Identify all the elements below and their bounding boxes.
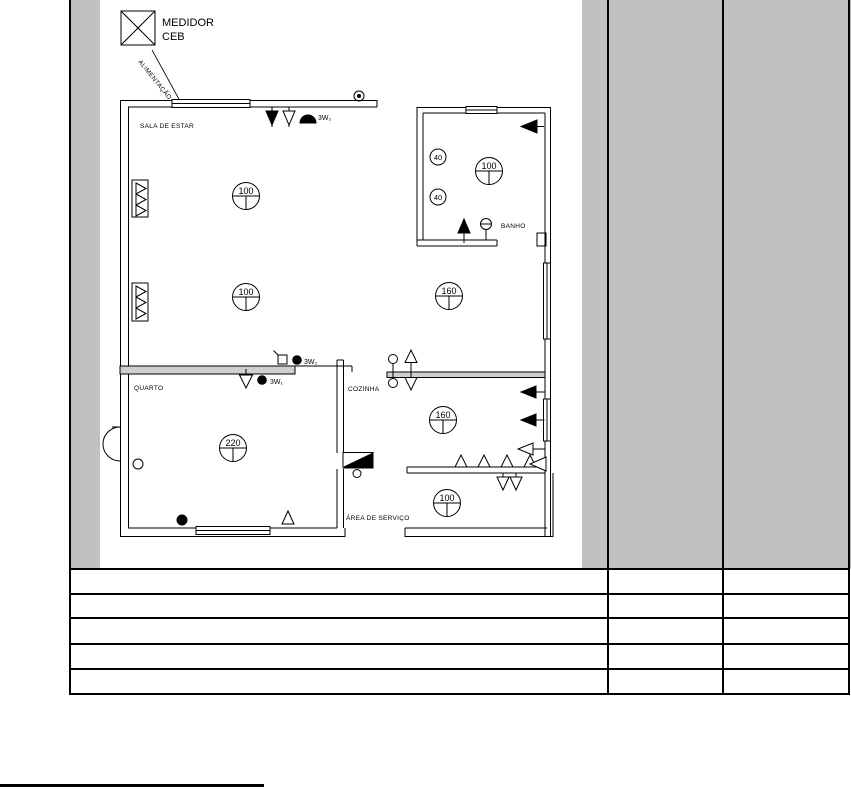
sconce-bath-2: 40 — [430, 189, 446, 205]
meter-label-2: CEB — [162, 31, 185, 43]
svg-text:100: 100 — [238, 287, 253, 297]
svg-text:100: 100 — [439, 493, 454, 503]
three-way-label-b: 3W₁ — [270, 379, 284, 386]
service-label: ÁREA DE SERVIÇO — [346, 513, 410, 522]
right-gray-region — [582, 0, 851, 569]
left-gray-strip — [71, 0, 100, 569]
kitchen-label: COZINHA — [348, 386, 380, 393]
sconce-bath-1: 40 — [430, 149, 446, 165]
bath-label: BANHO — [501, 223, 526, 230]
light-bedroom: 220 — [220, 435, 247, 462]
light-service: 100 — [434, 490, 461, 517]
document-page: MEDIDOR CEB ALIMENTAÇÃO — [0, 0, 851, 789]
svg-text:100: 100 — [238, 186, 253, 196]
window-living-top — [172, 100, 250, 108]
bedroom-wall-circle-icon — [133, 459, 143, 469]
light-kitchen: 160 — [430, 407, 457, 434]
three-way-label-living: 3W₂ — [318, 115, 332, 122]
footnote-rule — [0, 784, 264, 787]
window-bath-top — [466, 107, 497, 114]
svg-text:100: 100 — [481, 161, 496, 171]
switch-dot-a — [293, 356, 302, 365]
bedroom-floor-dot-icon — [177, 515, 187, 525]
switch-dot-b — [258, 376, 267, 385]
light-living-1: 100 — [233, 183, 260, 210]
light-hall: 160 — [436, 283, 463, 310]
wall-vent-icon-1 — [132, 180, 148, 217]
svg-text:40: 40 — [434, 153, 442, 162]
light-living-2: 100 — [233, 284, 260, 311]
light-bath: 100 — [476, 158, 503, 185]
bedroom-label: QUARTO — [134, 385, 163, 392]
svg-text:40: 40 — [434, 193, 442, 202]
wall-vent-icon-2 — [132, 283, 148, 321]
meter-label-1: MEDIDOR — [162, 17, 214, 29]
svg-text:220: 220 — [225, 438, 240, 448]
living-room-label: SALA DE ESTAR — [140, 123, 194, 130]
svg-text:160: 160 — [435, 410, 450, 420]
window-right-2 — [544, 399, 551, 441]
window-bedroom-bottom — [196, 527, 270, 535]
three-way-label-a: 3W₂ — [304, 359, 318, 366]
svg-text:160: 160 — [441, 286, 456, 296]
window-right-1 — [544, 263, 551, 339]
